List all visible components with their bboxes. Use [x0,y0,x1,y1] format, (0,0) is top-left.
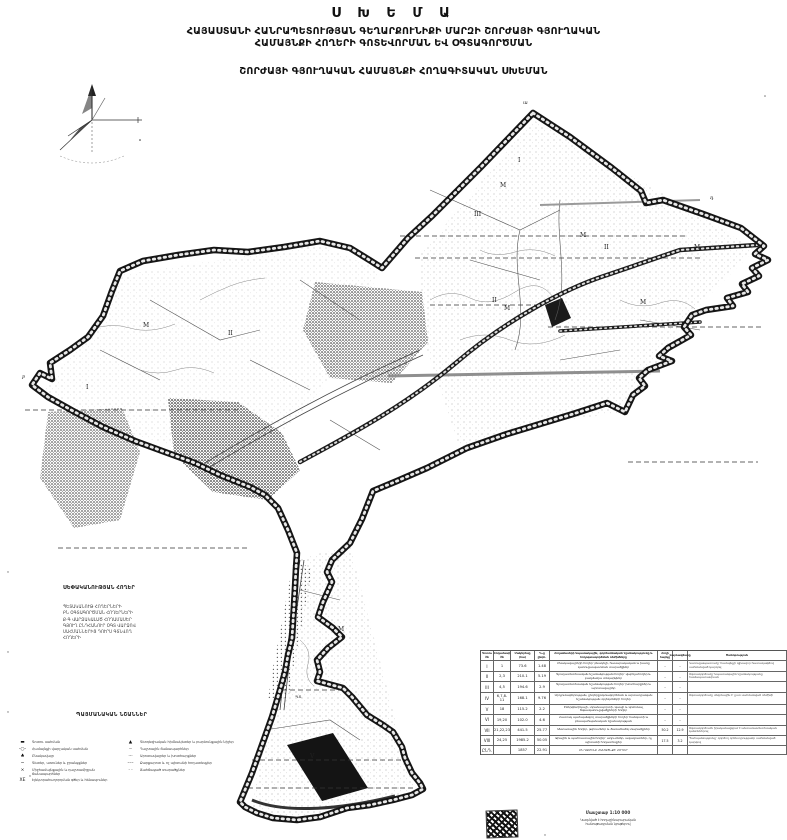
table-cell-designation: Էներգետիկայի, տրանսպորտի, կապի և կոմունա… [550,705,658,716]
table-cell-rent: 3.2 [673,736,688,747]
table-cell-parcels: 24,25 [494,736,511,747]
signs-legend-right-column: ▲ Գեոդեզիական հիմնակետեր և բարձունքային … [124,740,248,783]
table-cell-zone: IV [481,693,494,705]
table-cell-note [688,715,787,726]
table-cell-tax: 17.5 [658,736,673,747]
settlement-icon: ♣ [16,754,29,759]
corner-mark-label: դ [710,195,714,201]
table-header-rent: Վարձավճարը [673,651,688,661]
table-cell-area: 1985.2 [511,736,535,747]
river-icon: ~ [16,761,29,766]
legend-item-label: Բնակավայր [32,754,54,758]
table-cell-note: Օգտագործումն իրականացվում է անտառատնտեսա… [688,726,787,736]
compass-rose-icon [60,84,142,163]
table-cell-parcels: 18 [494,705,511,716]
table-cell-tax [658,746,673,755]
table-cell-tax: – [658,715,673,726]
table-cell-rent: 12.9 [673,726,688,736]
zone-label: M [500,182,506,189]
table-cell-zone: VI [481,715,494,726]
legend-item: ~ Գետեր, առուներ և ջրանցքներ [16,761,120,766]
signs-legend-left-column: ▬ Գոտու սահման -○- Համայնքի վարչական սահ… [16,740,120,783]
signs-legend-heading: ՊԱՅՄԱՆԱԿԱՆ ՆՇԱՆՆԵՐ [76,712,147,718]
corner-mark-label: բ [21,374,25,380]
table-cell-area: 210.1 [511,672,535,683]
legend-item: –·– Քարքարոտ և ոչ պիտանի հողատեսքեր [124,761,248,766]
table-cell-area: 115.2 [511,705,535,716]
ownership-legend-line: ՀՈՂԵՐԻ [63,635,193,641]
table-cell-rent: – [673,705,688,716]
sheet-subtitle-line1: ՀԱՅԱՍՏԱՆԻ ՀԱՆՐԱՊԵՏՈՒԹՅԱՆ ԳԵՂԱՐՔՈՒՆԻՔԻ ՄԱ… [0,26,787,37]
table-cell-percent: 1.48 [535,661,550,672]
rocky-land-icon: –·– [124,761,137,766]
road-icon: × [16,768,29,773]
west-shaded-area [40,408,140,528]
legend-item-label: Գոտու սահման [32,740,60,744]
table-cell-zone: VII [481,726,494,736]
table-header-zone: Գոտու № [481,651,494,661]
table-cell-area: 73.6 [511,661,535,672]
table-cell-percent: 22.91 [535,746,550,755]
table-cell-designation: Արդյունաբերության, ընդերքօգտագործման և ա… [550,693,658,705]
legend-item-label: Ճահճացած տարածքներ [140,768,185,772]
sheet-subtitle-line3: ՇՈՐԺԱՅԻ ԳՅՈՒՂԱԿԱՆ ՀԱՄԱՅՆՔԻ ՀՈՂԱԳԻՏԱԿԱՆ Ս… [0,66,787,77]
legend-item: ┄ Դաշտային ճանապարհներ [124,747,248,752]
table-cell-note [688,682,787,693]
signs-legend: ▬ Գոտու սահման -○- Համայնքի վարչական սահ… [16,740,248,783]
table-cell-designation: Բնակավայրերի հողեր՝ բնակելի, հասարակական… [550,661,658,672]
table-cell-designation: Ջրային և պահուստային հողեր՝ աղուտներ, ավ… [550,736,658,747]
zone-label: V [309,753,315,760]
table-cell-percent: 5.19 [535,672,550,683]
zone-boundary-icon: ▬ [16,740,29,745]
table-cell-tax: – [658,693,673,705]
ownership-legend: ՍԵՓԱԿԱՆՈՒԹՅԱՆ ՀՈՂԵՐ ՊԵՏԱԿԱՆՈՒԹ ՀՈՂԵՐՆԵՐԻ… [63,585,193,642]
corner-mark-label: ա [523,100,528,106]
table-cell-zone: ԸՆԴ. [481,746,494,755]
legend-item: · · Ճահճացած տարածքներ [124,768,248,773]
table-cell-parcels: 2,3 [494,672,511,683]
table-cell-rent: – [673,693,688,705]
legend-item: ▲ Գեոդեզիական հիմնակետեր և բարձունքային … [124,740,248,745]
zone-label: M [338,626,344,633]
legend-item-label: Քարքարոտ և ոչ պիտանի հողատեսքեր [140,761,212,765]
footer-note-line: հանութագրման նյութերով [538,822,678,826]
powerline-icon: XE [16,778,29,783]
table-cell-designation: Գյուղատնտեսական նշանակության հողեր՝ խոտհ… [550,682,658,693]
pasture-icon: ··· [124,754,137,759]
sheet-subtitle-line2: ՀԱՄԱՅՆՔԻ ՀՈՂԵՐԻ ԳՈՏԵՎՈՐՄԱՆ ԵՎ ՕԳՏԱԳՈՐԾՄԱ… [0,38,787,49]
table-cell-designation: ԸՆԴԱՄԵՆԸ ՀԱՄԱՅՆՔԻ ՀՈՂԵՐ [550,746,658,755]
table-cell-parcels: 1 [494,661,511,672]
table-cell-rent [673,746,688,755]
community-boundary-icon: -○- [16,747,29,752]
scanned-map-sheet: ա դ բ I M III M II M II M M M II I M ՊՏ … [0,0,787,840]
legend-item: × Միջհամայնքային և դաշտամիջյան ճանապարհն… [16,768,120,776]
zone-label: II [492,297,497,304]
table-header-percent: %-ը ընդհ. [535,651,550,661]
table-cell-note [688,746,787,755]
zone-label: M [640,299,646,306]
legend-item-label: Դաշտային ճանապարհներ [140,747,189,751]
table-cell-note: Օգտագործումը սեզոնային է՝ ըստ սահմանված … [688,693,787,705]
sheet-title: Ս Խ Ե Մ Ա [0,6,787,21]
table-cell-percent: 2.9 [535,682,550,693]
table-cell-tax: – [658,661,673,672]
table-cell-area: 1857 [511,746,535,755]
stamp-mark [486,809,519,838]
legend-item-label: Գետեր, առուներ և ջրանցքներ [32,761,87,765]
legend-item-label: Էլեկտրահաղորդման գծեր և հենասյուներ [32,778,107,782]
marsh-icon: · · [124,768,137,773]
table-cell-percent: 50.05 [535,736,550,747]
table-cell-designation: Հատուկ պահպանվող տարածքների հողեր՝ հանգս… [550,715,658,726]
legend-item: ▬ Գոտու սահման [16,740,120,745]
table-cell-note [688,705,787,716]
table-cell-percent: 9.76 [535,693,550,705]
table-cell-note: Կառուցապատումը՝ համայնքի գլխավոր հատակագ… [688,661,787,672]
zone-label: II [604,244,609,251]
table-cell-parcels: 19,20 [494,715,511,726]
table-header-parcels: Հողամասի № [494,651,511,661]
ownership-legend-heading: ՍԵՓԱԿԱՆՈՒԹՅԱՆ ՀՈՂԵՐ [63,585,193,591]
table-cell-parcels: 6,7,8-11 [494,693,511,705]
table-cell-parcels: 4,5 [494,682,511,693]
map-footer: Մասշտաբ 1:10 000 Կազմված է հողաշինարարակ… [538,810,678,826]
zone-label: II [228,330,233,337]
table-cell-note: Օգտագործումը՝ նպատակային նշանակությանը հ… [688,672,787,683]
legend-item-label: Միջհամայնքային և դաշտամիջյան ճանապարհներ [32,768,120,776]
table-cell-area: 168.1 [511,693,535,705]
table-cell-parcels: 21,22,23 [494,726,511,736]
legend-item: ♣ Բնակավայր [16,754,120,759]
table-cell-rent: – [673,715,688,726]
table-cell-tax: – [658,705,673,716]
table-cell-area: 441.5 [511,726,535,736]
table-cell-area: 102.0 [511,715,535,726]
table-cell-designation: Անտառային հողեր, թփուտներ և ծառածածկ տար… [550,726,658,736]
table-cell-rent: – [673,682,688,693]
legend-item-label: Համայնքի վարչական սահման [32,747,88,751]
table-cell-zone: VIII [481,736,494,747]
table-cell-rent: – [673,661,688,672]
zone-label: III [474,211,482,218]
table-cell-tax: 50.2 [658,726,673,736]
table-cell-tax: – [658,672,673,683]
legend-item-label: Արոտավայրեր և խոտհարքներ [140,754,196,758]
legend-item: XE Էլեկտրահաղորդման գծեր և հենասյուներ [16,778,120,783]
table-cell-tax: – [658,682,673,693]
table-header-area: Մակերեսը (հա) [511,651,535,661]
table-cell-zone: II [481,672,494,683]
table-cell-percent: 25.77 [535,726,550,736]
table-cell-zone: V [481,705,494,716]
table-cell-note: Պահպանությունը՝ գործող օրենսդրությամբ սա… [688,736,787,747]
field-road-icon: ┄ [124,747,137,752]
table-cell-rent: – [673,672,688,683]
legend-item-label: Գեոդեզիական հիմնակետեր և բարձունքային նի… [140,740,234,744]
legend-item: ··· Արոտավայրեր և խոտհարքներ [124,754,248,759]
table-cell-percent: 2.2 [535,705,550,716]
table-cell-percent: 4.6 [535,715,550,726]
zoning-table: Գոտու № Հողամասի № Մակերեսը (հա) %-ը ընդ… [480,650,787,755]
table-header-designation: Հողամասերի նպատակային, գործառնական նշանա… [550,651,658,661]
zone-label: M [504,305,510,312]
legend-item: -○- Համայնքի վարչական սահման [16,747,120,752]
zone-label: M [694,244,700,251]
zone-label: M [143,322,149,329]
scale-label: Մասշտաբ 1:10 000 [538,810,678,815]
table-cell-designation: Գյուղատնտեսական նշանակության հողեր՝ վարե… [550,672,658,683]
table-cell-zone: I [481,661,494,672]
table-cell-area: 194.6 [511,682,535,693]
zone-label: ՊՏ [295,694,301,699]
geodetic-point-icon: ▲ [124,740,137,745]
zone-label: M [580,232,586,239]
table-cell-zone: III [481,682,494,693]
table-header-notes: Ծանոթություն [688,651,787,661]
table-cell-parcels [494,746,511,755]
